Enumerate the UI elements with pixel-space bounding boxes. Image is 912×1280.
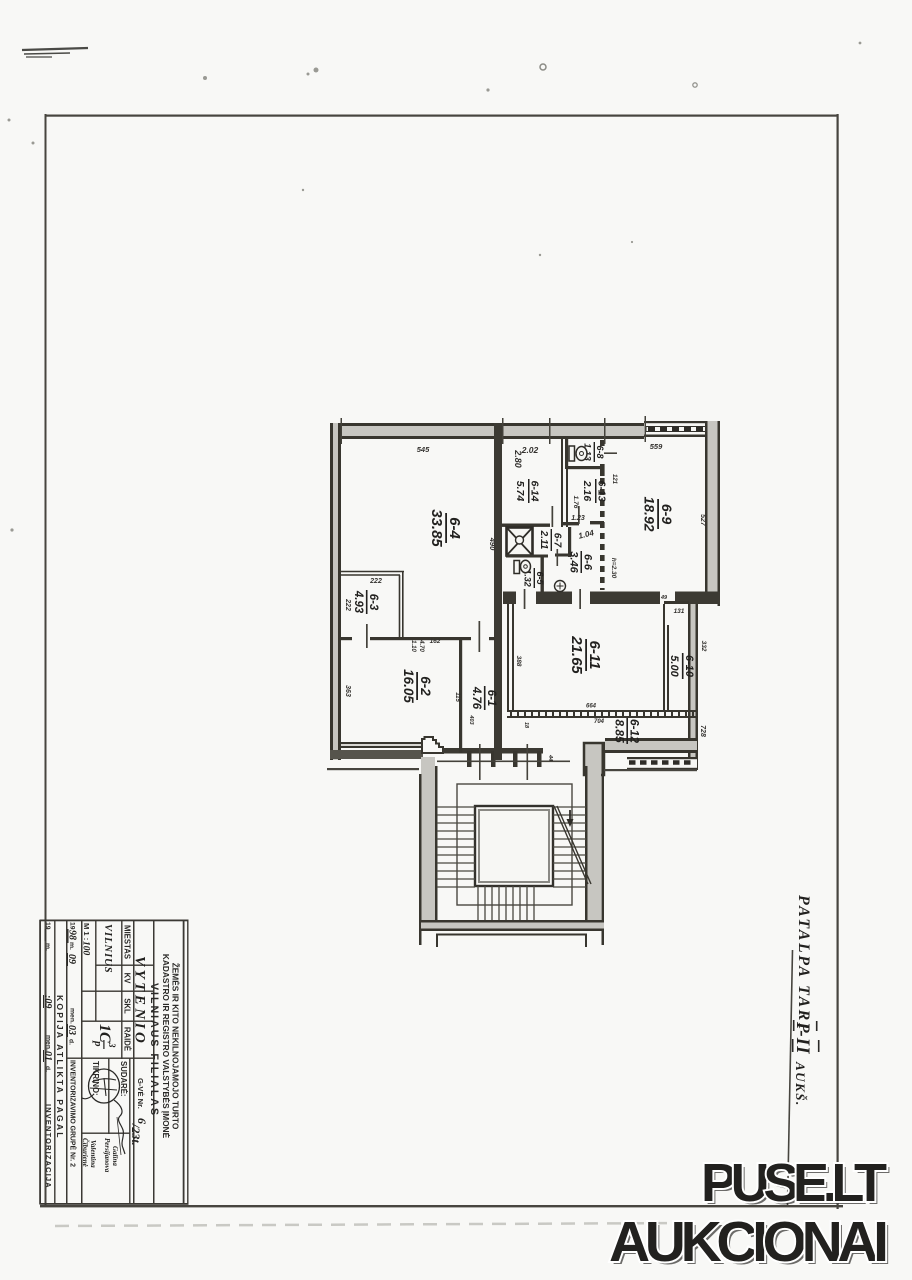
svg-text:men.: men. — [45, 1035, 52, 1051]
svg-text:men.: men. — [69, 1008, 76, 1024]
svg-text:AUKCIONAI: AUKCIONAI — [609, 1210, 889, 1274]
svg-text:1.23: 1.23 — [571, 515, 585, 522]
svg-text:2.80: 2.80 — [513, 449, 523, 468]
svg-text:INVENTORIZAVIMO GRUPĖ Nr. 2: INVENTORIZAVIMO GRUPĖ Nr. 2 — [69, 1060, 78, 1167]
svg-text:d.: d. — [68, 1039, 75, 1045]
svg-text:Čiburienė: Čiburienė — [81, 1138, 89, 1167]
svg-text:6-8: 6-8 — [595, 445, 605, 458]
svg-text:SKL: SKL — [123, 998, 132, 1014]
svg-text:m.: m. — [44, 943, 51, 951]
svg-text:KADASTRO IR REGISTRO VALSTYBĖS: KADASTRO IR REGISTRO VALSTYBĖS ĮMONĖ — [161, 954, 171, 1139]
svg-text:PUSE.LT: PUSE.LT — [701, 1153, 887, 1213]
svg-text:704: 704 — [594, 719, 605, 725]
svg-text:131: 131 — [674, 608, 685, 615]
svg-text:19: 19 — [44, 922, 51, 930]
svg-text:664: 664 — [586, 704, 597, 710]
svg-text:3.46: 3.46 — [568, 551, 580, 573]
svg-text:6-1: 6-1 — [485, 690, 497, 707]
svg-text:G-VĖ Nr.: G-VĖ Nr. — [136, 1078, 145, 1109]
svg-text:VYTENIO: VYTENIO — [132, 956, 148, 1046]
svg-text:4.76: 4.76 — [470, 686, 482, 710]
svg-text:PATALPA TARP: PATALPA TARP — [795, 894, 812, 1035]
svg-text:8.85: 8.85 — [613, 719, 627, 743]
svg-text:403: 403 — [468, 714, 474, 724]
svg-text:115: 115 — [454, 692, 460, 702]
svg-text:16.05: 16.05 — [401, 669, 416, 703]
svg-text:490: 490 — [488, 537, 497, 551]
svg-text:33.85: 33.85 — [428, 509, 445, 547]
svg-text:TIKRINO:: TIKRINO: — [91, 1061, 100, 1096]
svg-text:VILNIAUS FILIALAS: VILNIAUS FILIALAS — [148, 983, 160, 1117]
svg-text:VILNIUS: VILNIUS — [102, 924, 113, 974]
svg-text:RAIDĖ: RAIDĖ — [123, 1027, 132, 1051]
svg-text:2.11: 2.11 — [538, 530, 549, 550]
svg-text:KOPIJA ATLIKTA PAGAL: KOPIJA ATLIKTA PAGAL — [55, 995, 65, 1140]
svg-text:Valentina: Valentina — [89, 1140, 97, 1168]
svg-text:4.70: 4.70 — [418, 639, 424, 652]
svg-text:4.93: 4.93 — [352, 590, 364, 614]
svg-text:h=2.30: h=2.30 — [610, 558, 617, 579]
svg-text:6-13: 6-13 — [596, 480, 608, 501]
svg-text:d.: d. — [44, 1066, 51, 1072]
svg-text:388: 388 — [515, 656, 522, 667]
svg-text:Persijanova: Persijanova — [103, 1138, 111, 1173]
svg-text:559: 559 — [650, 442, 663, 451]
svg-text:222: 222 — [369, 578, 382, 585]
svg-text:18: 18 — [523, 722, 529, 729]
svg-text:527: 527 — [699, 514, 706, 527]
svg-text:6-4: 6-4 — [446, 517, 463, 539]
svg-text:162: 162 — [430, 638, 441, 645]
svg-text:6-5: 6-5 — [535, 571, 545, 585]
svg-text:5.00: 5.00 — [668, 655, 680, 677]
svg-text:SUDARĖ:: SUDARĖ: — [119, 1061, 128, 1097]
svg-text:6-2: 6-2 — [418, 676, 433, 696]
svg-text:6-10: 6-10 — [683, 655, 695, 678]
svg-text:AUKŠ.: AUKŠ. — [793, 1061, 808, 1107]
svg-text:2.16: 2.16 — [581, 480, 593, 502]
svg-text:363: 363 — [344, 685, 351, 697]
svg-text:3: 3 — [107, 1042, 117, 1048]
svg-text:KV: KV — [123, 973, 132, 985]
svg-text:I-II: I-II — [792, 1021, 813, 1055]
svg-text:m.: m. — [68, 942, 75, 950]
svg-text:332: 332 — [700, 641, 707, 652]
svg-text:21.65: 21.65 — [568, 635, 585, 674]
svg-text:6-7: 6-7 — [552, 533, 563, 548]
svg-text:19: 19 — [69, 922, 76, 930]
svg-text:ŽEMĖS IR KITO NEKILNOJAMOJO TU: ŽEMĖS IR KITO NEKILNOJAMOJO TURTO — [171, 963, 182, 1130]
svg-text:6-11: 6-11 — [586, 641, 603, 670]
svg-text:M 1 :: M 1 : — [82, 923, 91, 940]
svg-text:p: p — [92, 1040, 104, 1047]
svg-text:222: 222 — [344, 598, 351, 611]
svg-text:44: 44 — [547, 754, 553, 761]
svg-text:100: 100 — [81, 941, 91, 956]
svg-text:728: 728 — [699, 725, 706, 737]
svg-text:5.74: 5.74 — [514, 481, 526, 502]
svg-text:121: 121 — [611, 474, 617, 485]
svg-text:INVENTORIZACIJA: INVENTORIZACIJA — [44, 1104, 53, 1189]
svg-text:6-12: 6-12 — [628, 719, 642, 743]
svg-text:6-6: 6-6 — [582, 554, 594, 571]
svg-text:18.92: 18.92 — [642, 496, 658, 531]
svg-text:49: 49 — [660, 595, 668, 601]
svg-text:545: 545 — [417, 445, 430, 454]
svg-text:6-14: 6-14 — [529, 480, 541, 501]
svg-text:6-9: 6-9 — [659, 504, 675, 524]
svg-text:Galina: Galina — [111, 1146, 119, 1166]
svg-text:/23t.: /23t. — [129, 1123, 143, 1146]
svg-text:MIESTAS: MIESTAS — [123, 925, 132, 959]
svg-text:6-3: 6-3 — [367, 594, 379, 611]
svg-text:1.10: 1.10 — [410, 640, 416, 652]
svg-text:1.76: 1.76 — [572, 496, 579, 509]
